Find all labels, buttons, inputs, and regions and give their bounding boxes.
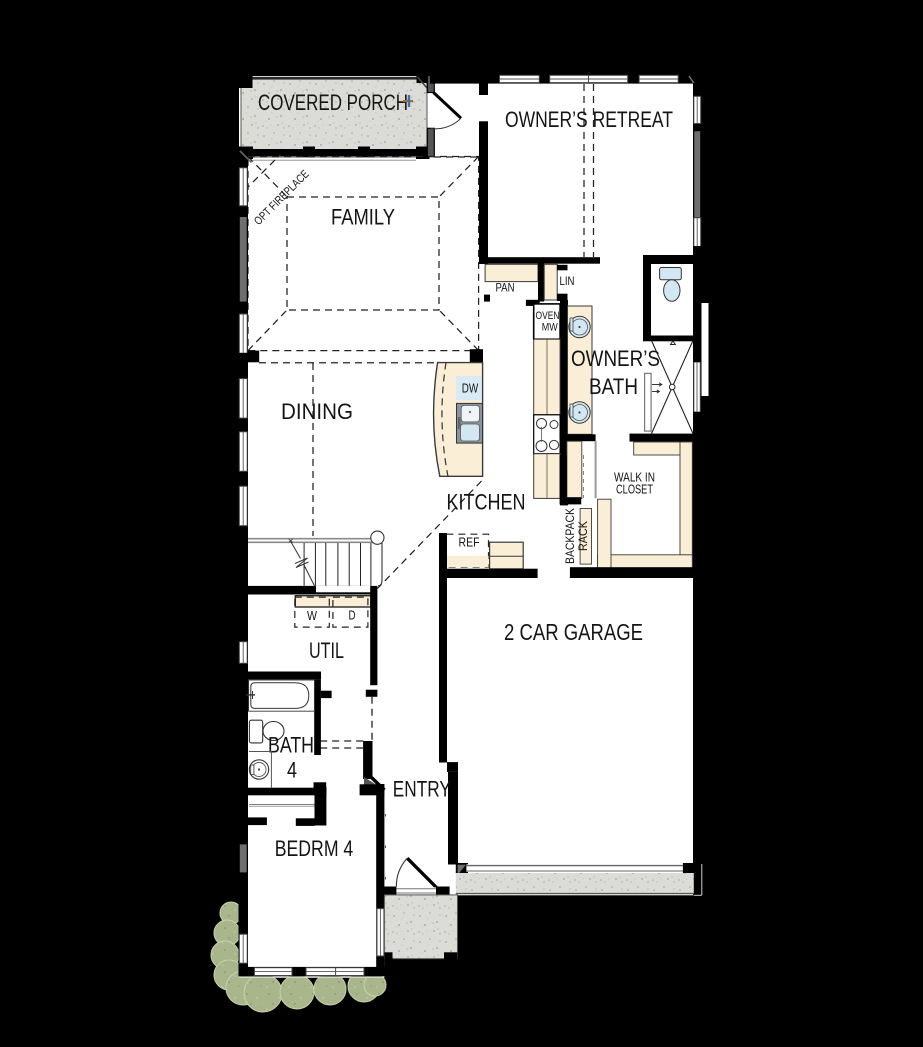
svg-text:BACKPACK: BACKPACK <box>565 508 577 564</box>
svg-text:RACK: RACK <box>578 521 590 551</box>
svg-text:2 CAR GARAGE: 2 CAR GARAGE <box>504 619 643 645</box>
svg-text:REF: REF <box>459 535 480 549</box>
svg-text:BATH: BATH <box>268 732 314 757</box>
svg-text:OWNER’S RETREAT: OWNER’S RETREAT <box>505 107 673 132</box>
svg-text:OWNER’S: OWNER’S <box>571 346 660 371</box>
svg-text:FAMILY: FAMILY <box>331 205 395 230</box>
svg-text:CLOSET: CLOSET <box>616 483 653 497</box>
svg-text:BEDRM 4: BEDRM 4 <box>275 836 354 861</box>
svg-text:LIN: LIN <box>560 274 575 288</box>
svg-text:DW: DW <box>462 382 479 396</box>
svg-text:DINING: DINING <box>281 399 353 424</box>
svg-text:D: D <box>349 607 356 622</box>
svg-text:BATH: BATH <box>589 374 638 399</box>
svg-text:MW: MW <box>542 321 559 333</box>
svg-text:W: W <box>307 608 318 623</box>
svg-text:KITCHEN: KITCHEN <box>447 490 526 515</box>
svg-text:COVERED PORCH: COVERED PORCH <box>258 90 408 115</box>
svg-text:4: 4 <box>287 758 297 783</box>
svg-text:UTIL: UTIL <box>309 638 344 663</box>
svg-text:OVEN: OVEN <box>536 310 560 322</box>
svg-text:PAN: PAN <box>496 280 515 294</box>
svg-text:ENTRY: ENTRY <box>393 777 451 802</box>
